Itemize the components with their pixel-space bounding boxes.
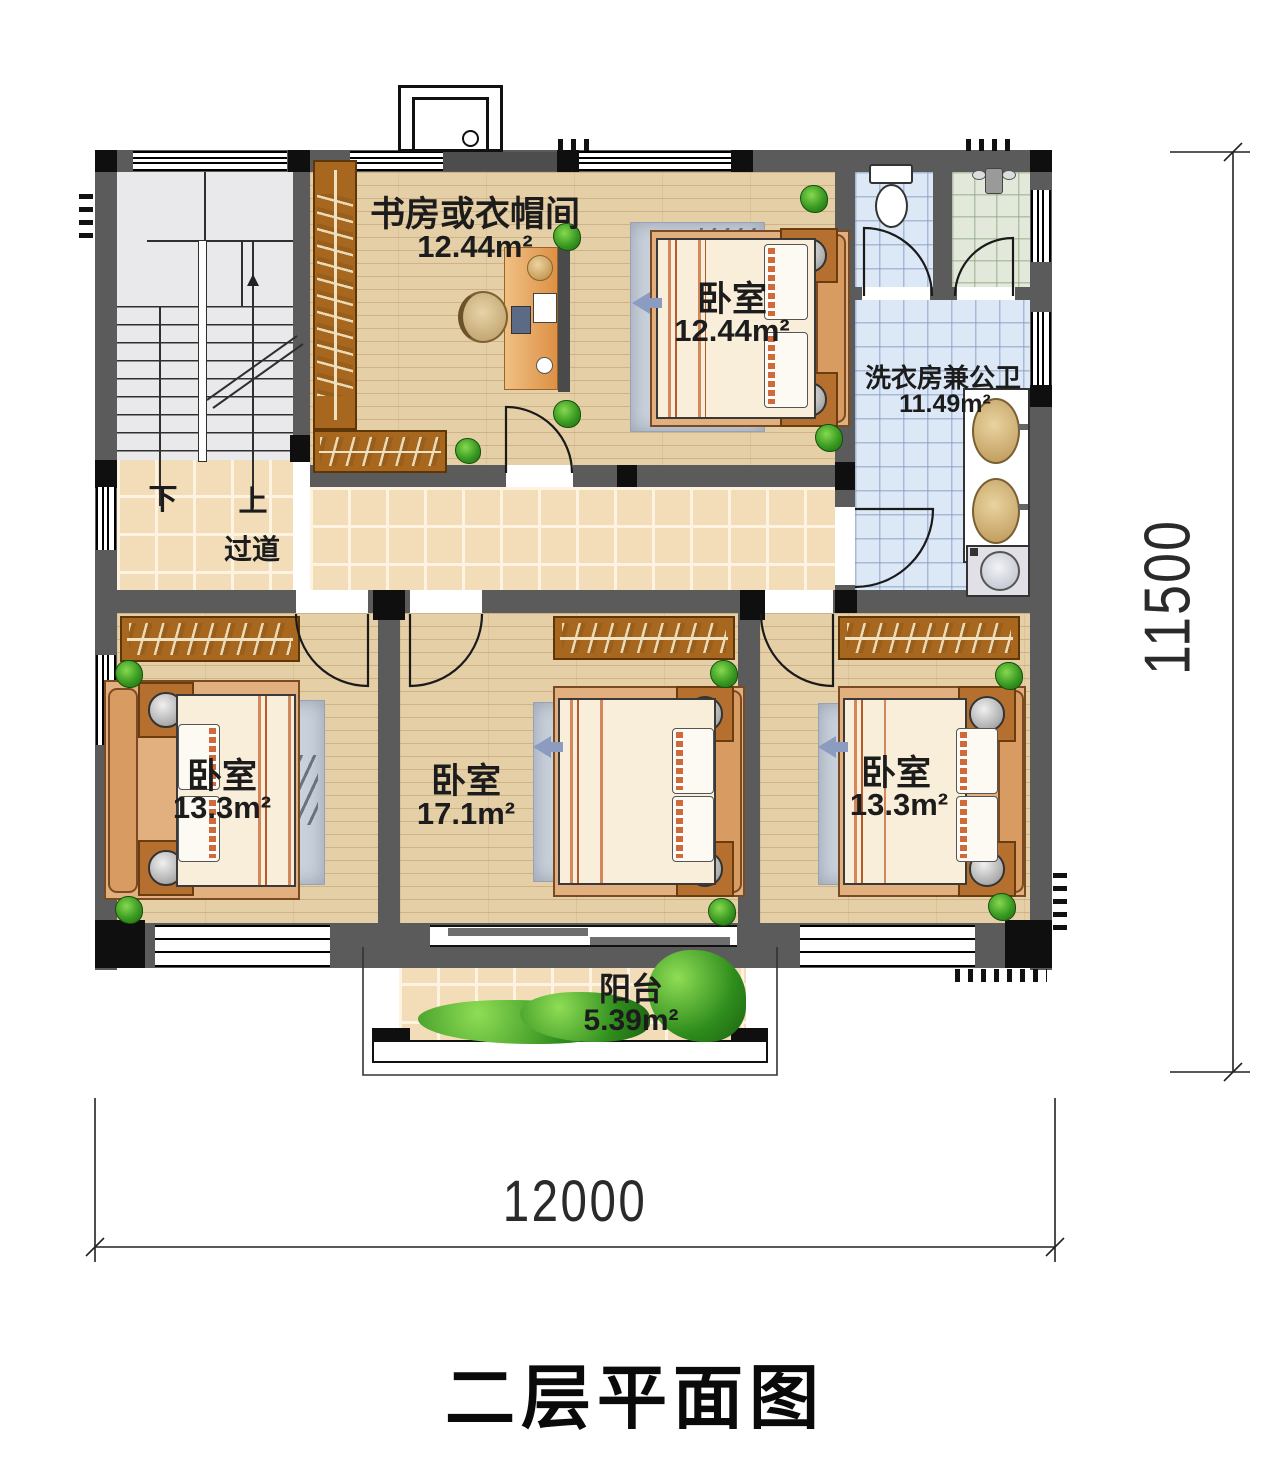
shower-fixture (1002, 170, 1016, 180)
plant (988, 893, 1016, 921)
faucet (1018, 504, 1028, 510)
plant (995, 662, 1023, 690)
hatch-marks (955, 969, 1047, 982)
window-bottom-right (800, 925, 975, 967)
plant (800, 185, 828, 213)
bedroom-middle-door-opening (410, 590, 482, 613)
washer-knob (970, 548, 978, 556)
window-top-bedroom (579, 151, 731, 171)
balcony-area: 5.39m² (561, 1004, 701, 1038)
stair-line (241, 240, 243, 306)
direction-arrow-bar (650, 298, 662, 308)
window-right-shower (1031, 190, 1051, 262)
bedroom-left-area: 13.3m² (152, 790, 292, 826)
window-top-study (350, 151, 443, 171)
books (511, 306, 531, 334)
corridor-label: 过道 (212, 528, 292, 568)
dimension-width-label: 12000 (411, 1168, 739, 1235)
shower-door-opening (957, 287, 1015, 300)
window-left-corridor (96, 487, 116, 550)
study-area: 12.44m² (350, 229, 600, 265)
laundry-area: 11.49m² (855, 390, 1035, 419)
column (95, 920, 145, 968)
toilet-tank (869, 164, 913, 184)
hatch-marks (558, 139, 596, 151)
bedroom-right-door-opening (761, 590, 833, 613)
column (1030, 150, 1052, 172)
bedroom-right-area: 13.3m² (829, 787, 969, 823)
top-bay-door-inner (412, 97, 489, 152)
bedroom-left-wardrobe (120, 616, 300, 662)
bed-headboard (108, 688, 138, 893)
wall-right (1030, 150, 1052, 970)
study-door-opening (506, 465, 573, 487)
hatch-marks (966, 139, 1016, 151)
rug-chevrons (300, 755, 318, 825)
blanket-stripes (562, 700, 606, 883)
corridor-tile-floor (310, 487, 835, 590)
sliding-door-panel (590, 937, 730, 945)
chair (458, 291, 508, 343)
balcony-railing (372, 1040, 768, 1063)
bedroom-right-wardrobe (838, 616, 1020, 660)
toilet-door-opening (862, 287, 930, 300)
column (288, 150, 310, 172)
direction-arrow (632, 292, 650, 314)
column (617, 465, 637, 487)
shower-head (985, 168, 1003, 194)
column (731, 150, 753, 172)
plant (708, 898, 736, 926)
window-top-stairs (133, 151, 287, 171)
laptop (533, 293, 557, 323)
plant (115, 896, 143, 924)
plant (710, 660, 738, 688)
hatch-marks (1053, 868, 1067, 930)
plant (553, 400, 581, 428)
bedroom-top-area: 12.44m² (662, 313, 802, 349)
wall-toilet-shower (933, 150, 952, 300)
column (557, 150, 579, 172)
washing-machine-drum (980, 551, 1020, 591)
wall-corridor-bottom (95, 590, 1052, 613)
pillow (672, 796, 714, 862)
floor-plan-canvas: 书房或衣帽间 12.44m² 卧室 12.44m² 洗衣房兼公卫 11.49m²… (0, 0, 1278, 1484)
top-door-sill (443, 152, 557, 171)
stair-down-label: 下 (143, 476, 183, 518)
column (95, 460, 117, 488)
bedroom-middle-wardrobe (553, 616, 735, 660)
dimension-height-label: 11500 (1131, 512, 1205, 682)
study-wardrobe-bottom (313, 430, 447, 473)
toilet-bowl (875, 184, 908, 228)
stair-line (204, 172, 206, 240)
stair-up-label: 上 (233, 478, 273, 520)
plant (455, 438, 481, 464)
column (835, 590, 857, 613)
stair-line (147, 240, 293, 242)
faucet (1018, 424, 1028, 430)
desk-cup (536, 357, 553, 374)
stair-rail (198, 240, 207, 462)
laundry-door-opening (835, 507, 855, 585)
column (835, 462, 855, 490)
pillow (672, 728, 714, 794)
desk-screen (558, 247, 570, 392)
stair-up-arrow (247, 268, 259, 286)
plant (815, 424, 843, 452)
sink-basin (972, 478, 1020, 544)
sliding-door-panel (448, 928, 588, 936)
wall-stair-study (293, 150, 310, 462)
direction-arrow-bar (551, 742, 563, 752)
shower-fixture (972, 170, 986, 180)
door-knob (462, 130, 479, 147)
bedroom-middle-area: 17.1m² (396, 796, 536, 832)
hatch-marks (79, 186, 93, 238)
column (740, 590, 765, 620)
column (95, 150, 117, 172)
bedroom-left-door-opening (296, 590, 368, 613)
page-title: 二层平面图 (330, 1342, 940, 1443)
column (373, 590, 405, 620)
window-bottom-left (155, 925, 330, 967)
column (290, 435, 310, 462)
plant (115, 660, 143, 688)
column (1005, 920, 1052, 968)
